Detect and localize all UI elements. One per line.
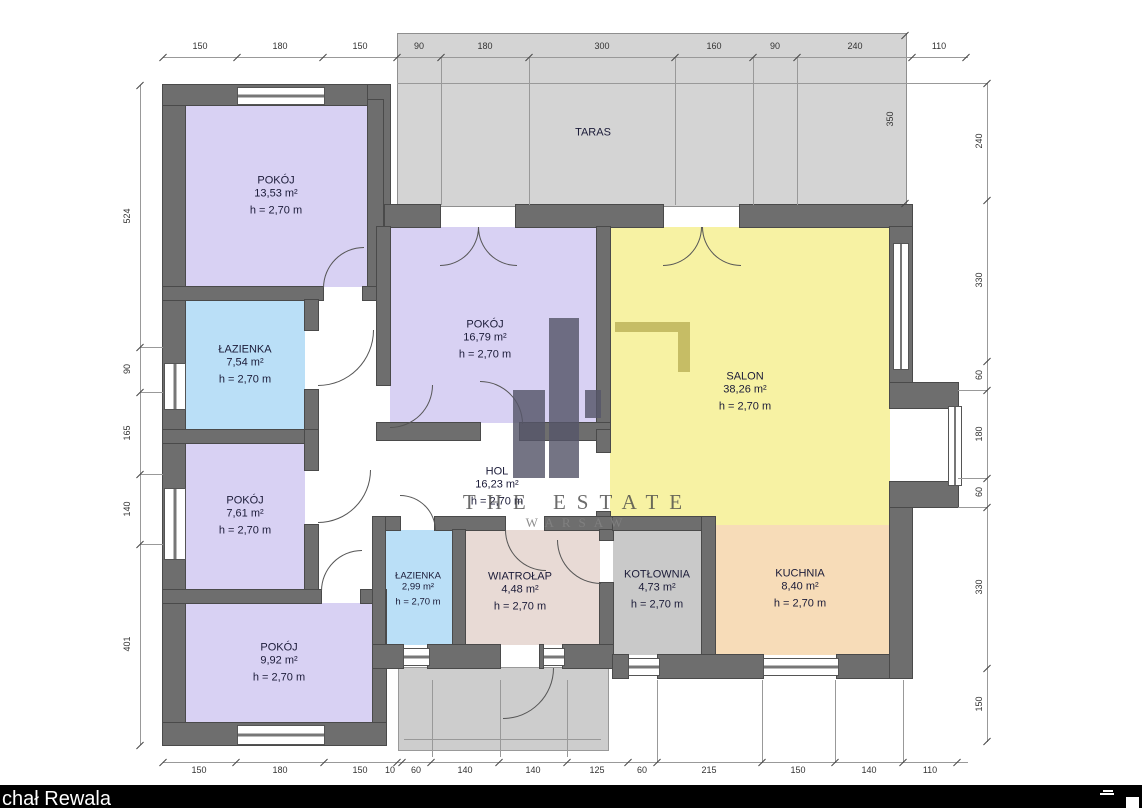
room-label-pokoj-3: POKÓJ9,92 m²h = 2,70 m <box>253 642 305 685</box>
wall-segment <box>516 205 663 227</box>
window <box>164 488 186 560</box>
floor-plan-canvas: TARAS POKÓJ13,53 m²h = 2,70 m ŁAZIENKA7,… <box>0 0 1142 808</box>
wall-segment <box>305 430 318 470</box>
extension-line <box>529 57 530 205</box>
dim-label: 401 <box>122 636 132 651</box>
wall-segment <box>305 300 318 330</box>
dim-label: 110 <box>923 765 937 775</box>
dim-label: 60 <box>411 765 421 775</box>
room-label-wiatrolap: WIATROŁAP4,48 m²h = 2,70 m <box>488 571 552 614</box>
wall-segment <box>428 645 500 668</box>
author-credit: chał Rewala <box>2 788 111 808</box>
watermark-text-warsaw: WARSAW <box>428 515 728 531</box>
room-label-kotlownia: KOTŁOWNIA4,73 m²h = 2,70 m <box>624 569 690 612</box>
dim-label: 60 <box>974 370 984 380</box>
dim-label: 140 <box>457 765 472 775</box>
wall-segment <box>163 287 323 300</box>
extension-line <box>432 680 433 757</box>
extension-line <box>958 478 987 479</box>
room-label-salon: SALON38,26 m²h = 2,70 m <box>719 371 771 414</box>
dim-label: 10 <box>385 765 395 775</box>
extension-line <box>903 680 904 762</box>
wall-segment <box>658 655 763 678</box>
extension-line <box>835 680 836 762</box>
window <box>237 87 325 105</box>
dim-label: 150 <box>974 696 984 711</box>
footer-logo-icon <box>1103 790 1113 792</box>
dim-label: 150 <box>192 41 207 51</box>
stoop-step-line <box>404 739 601 740</box>
dim-label: 165 <box>122 425 132 440</box>
watermark-logo-icon <box>513 390 545 478</box>
footer-logo-icon <box>1126 797 1139 808</box>
dim-label: 215 <box>701 765 716 775</box>
window <box>543 648 565 666</box>
wall-segment <box>163 430 318 443</box>
door-arc <box>318 470 371 523</box>
dim-label: 140 <box>861 765 876 775</box>
dim-label: 150 <box>191 765 206 775</box>
dim-label: 240 <box>847 41 862 51</box>
extension-line <box>140 392 163 393</box>
wall-segment <box>163 85 185 745</box>
extension-line <box>797 57 798 205</box>
extension-line <box>567 680 568 757</box>
extension-line <box>753 57 754 205</box>
room-label-pokoj-2: POKÓJ7,61 m²h = 2,70 m <box>219 495 271 538</box>
watermark-text-estate: THE ESTATE <box>428 490 728 515</box>
door-arc <box>321 550 362 591</box>
dim-line-left <box>140 85 141 745</box>
dim-label: 140 <box>525 765 540 775</box>
window <box>628 658 660 676</box>
door-arc <box>318 330 374 386</box>
dim-label: 150 <box>352 765 367 775</box>
extension-line <box>958 507 987 508</box>
dim-line-right <box>987 83 988 742</box>
dim-label: 90 <box>770 41 780 51</box>
watermark-logo-icon <box>549 318 579 478</box>
extension-line <box>958 390 987 391</box>
dim-label: 330 <box>974 579 984 594</box>
watermark-logo-icon <box>678 332 690 372</box>
dim-label: 90 <box>414 41 424 51</box>
dim-label: 110 <box>932 41 946 51</box>
wall-segment <box>377 227 390 385</box>
dim-label: 60 <box>974 487 984 497</box>
wall-segment <box>740 205 912 227</box>
extension-line <box>140 347 163 348</box>
wall-segment <box>563 645 613 668</box>
extension-line <box>140 544 163 545</box>
dim-label: 125 <box>589 765 604 775</box>
wall-segment <box>890 383 958 408</box>
extension-line <box>397 83 987 84</box>
wall-segment <box>702 517 715 658</box>
footer-logo-icon <box>1100 793 1114 795</box>
window <box>948 406 962 486</box>
dim-label: 140 <box>122 501 132 516</box>
dim-label: 300 <box>594 41 609 51</box>
wall-segment <box>597 430 610 452</box>
dim-label: 150 <box>352 41 367 51</box>
wall-segment <box>305 390 318 430</box>
extension-line <box>762 680 763 762</box>
dim-line-top <box>163 57 968 58</box>
dim-label: 180 <box>974 426 984 441</box>
wall-segment <box>613 655 628 678</box>
footer-bar: chał Rewala <box>0 785 1142 808</box>
terrace-label: TARAS <box>575 127 611 140</box>
window <box>763 658 839 676</box>
extension-line <box>500 680 501 757</box>
room-label-pokoj-1: POKÓJ13,53 m²h = 2,70 m <box>250 175 302 218</box>
wall-segment <box>373 517 385 645</box>
dim-label: 180 <box>272 41 287 51</box>
wall-segment <box>453 530 465 645</box>
wall-segment <box>163 590 321 603</box>
watermark-logo-icon <box>615 322 690 332</box>
room-label-kuchnia: KUCHNIA8,40 m²h = 2,70 m <box>774 568 826 611</box>
extension-line <box>441 57 442 205</box>
extension-line <box>657 680 658 762</box>
extension-line <box>675 57 676 205</box>
room-label-lazienka-2: ŁAZIENKA2,99 m²h = 2,70 m <box>395 571 441 608</box>
dim-label: 180 <box>272 765 287 775</box>
window <box>893 243 909 370</box>
dim-label: 160 <box>706 41 721 51</box>
window <box>237 725 325 745</box>
window <box>403 648 430 666</box>
dim-label: 60 <box>637 765 647 775</box>
room-label-pokoj-4: POKÓJ16,79 m²h = 2,70 m <box>459 319 511 362</box>
dim-label: 90 <box>122 364 132 374</box>
room-label-lazienka-1: ŁAZIENKA7,54 m²h = 2,70 m <box>218 344 271 387</box>
window <box>164 363 186 410</box>
wall-segment <box>600 530 613 540</box>
dim-label: 240 <box>974 133 984 148</box>
dim-label: 180 <box>477 41 492 51</box>
wall-segment <box>373 645 403 668</box>
terrace <box>397 33 907 207</box>
dim-label: 150 <box>790 765 805 775</box>
wall-segment <box>385 205 440 227</box>
dim-label: 330 <box>974 272 984 287</box>
watermark-logo-icon <box>585 390 601 418</box>
extension-line <box>140 474 163 475</box>
dim-label: 524 <box>122 208 132 223</box>
wall-segment <box>890 505 912 678</box>
dim-label-terrace-depth: 350 <box>885 111 895 126</box>
